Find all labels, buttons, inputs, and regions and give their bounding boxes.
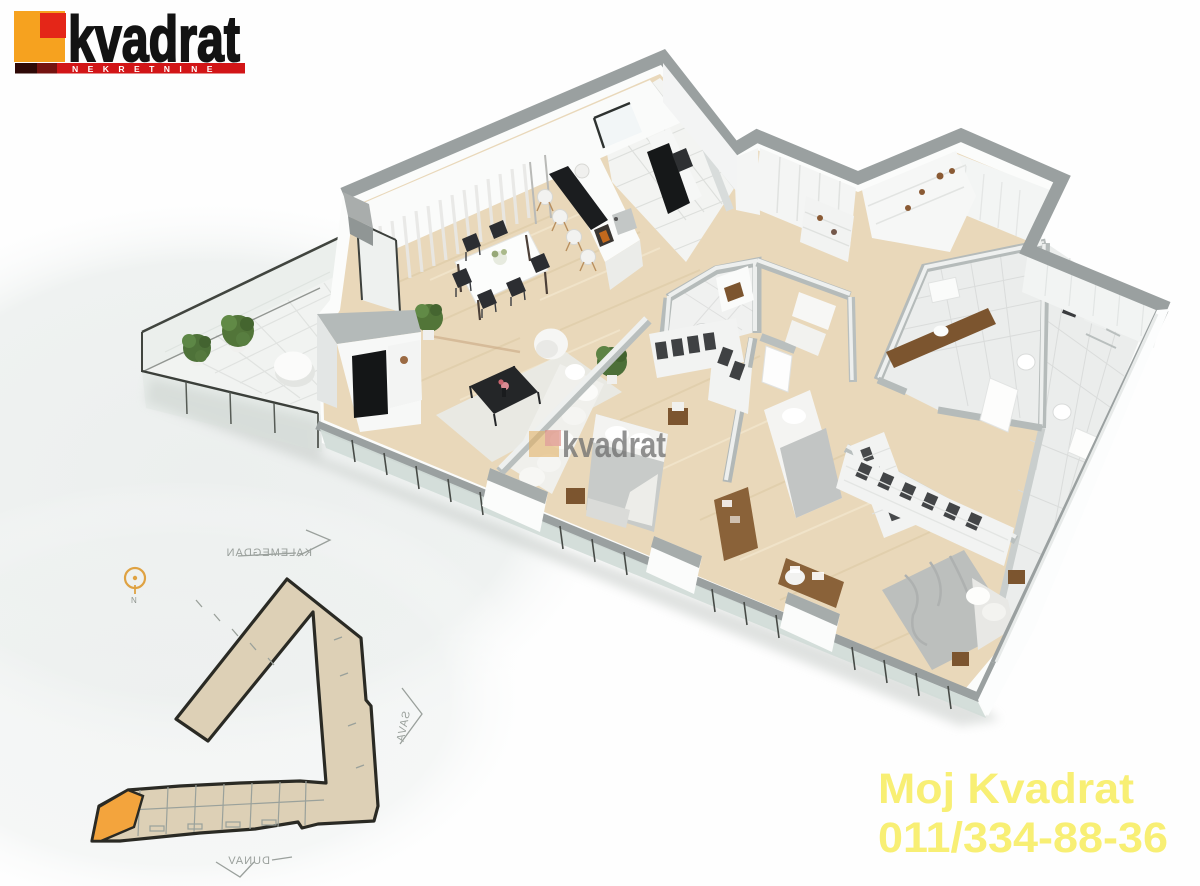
svg-text:011/334-88-36: 011/334-88-36: [878, 814, 1168, 862]
svg-text:DUNAV: DUNAV: [227, 855, 270, 867]
svg-text:NEKRETNINE: NEKRETNINE: [72, 64, 222, 74]
svg-text:kvadrat: kvadrat: [562, 424, 666, 465]
svg-text:Moj Kvadrat: Moj Kvadrat: [878, 765, 1134, 813]
svg-text:KALEMEGDAN: KALEMEGDAN: [226, 547, 312, 559]
svg-text:N: N: [131, 596, 137, 605]
